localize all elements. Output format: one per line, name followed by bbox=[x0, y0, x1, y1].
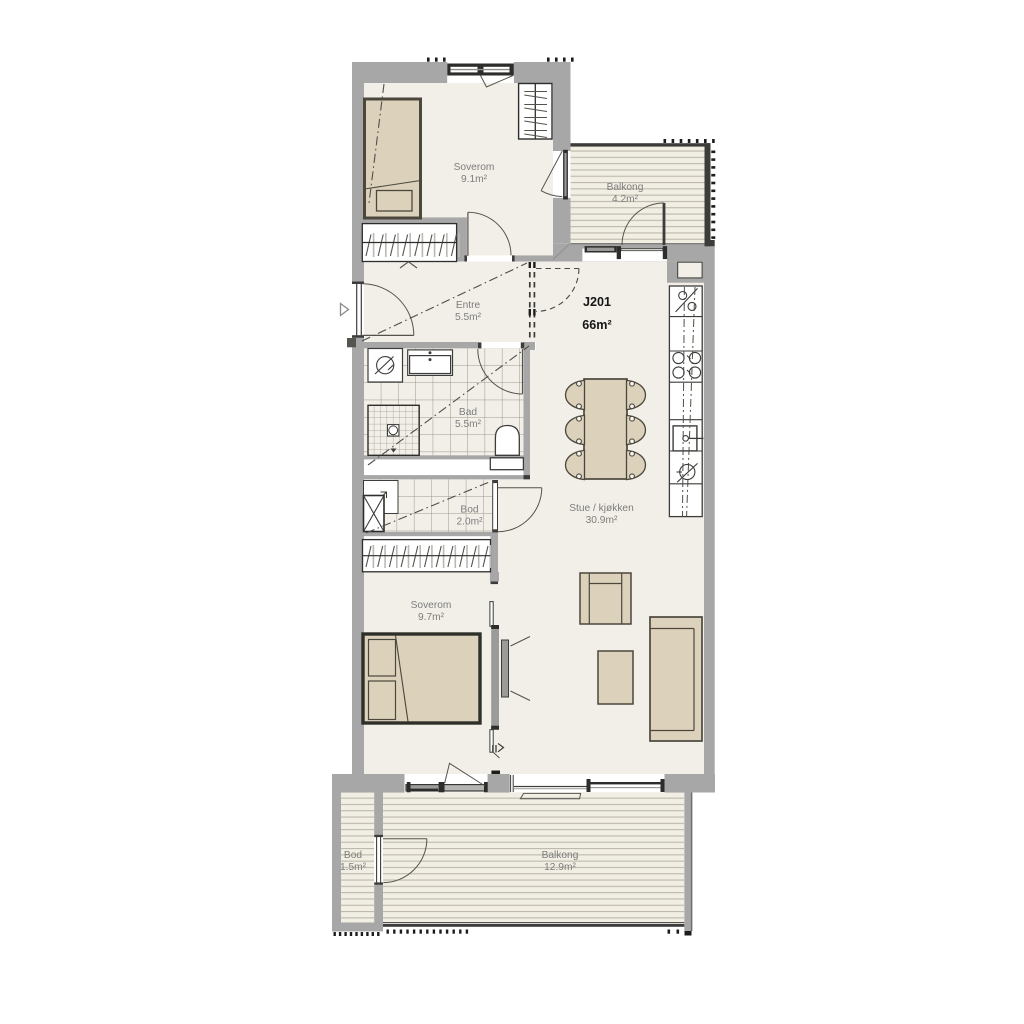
svg-text:Entre: Entre bbox=[456, 300, 481, 311]
svg-text:30.9m²: 30.9m² bbox=[586, 515, 618, 526]
svg-text:5.5m²: 5.5m² bbox=[455, 312, 482, 323]
svg-text:Balkong: Balkong bbox=[542, 850, 579, 861]
svg-text:9.7m²: 9.7m² bbox=[418, 612, 445, 623]
svg-text:Stue / kjøkken: Stue / kjøkken bbox=[569, 503, 634, 514]
svg-text:4.2m²: 4.2m² bbox=[612, 194, 639, 205]
svg-text:Bod: Bod bbox=[344, 850, 362, 861]
svg-text:66m²: 66m² bbox=[582, 318, 611, 332]
svg-text:2.0m²: 2.0m² bbox=[456, 517, 483, 528]
svg-text:9.1m²: 9.1m² bbox=[461, 174, 488, 185]
svg-text:J201: J201 bbox=[583, 295, 611, 309]
svg-text:Balkong: Balkong bbox=[607, 182, 644, 193]
svg-text:Bod: Bod bbox=[460, 505, 478, 516]
svg-text:Bad: Bad bbox=[459, 407, 477, 418]
svg-text:12.9m²: 12.9m² bbox=[544, 862, 576, 873]
svg-text:Soverom: Soverom bbox=[411, 600, 452, 611]
svg-text:5.5m²: 5.5m² bbox=[455, 419, 482, 430]
svg-text:1.5m²: 1.5m² bbox=[340, 862, 367, 873]
svg-text:Soverom: Soverom bbox=[454, 162, 495, 173]
